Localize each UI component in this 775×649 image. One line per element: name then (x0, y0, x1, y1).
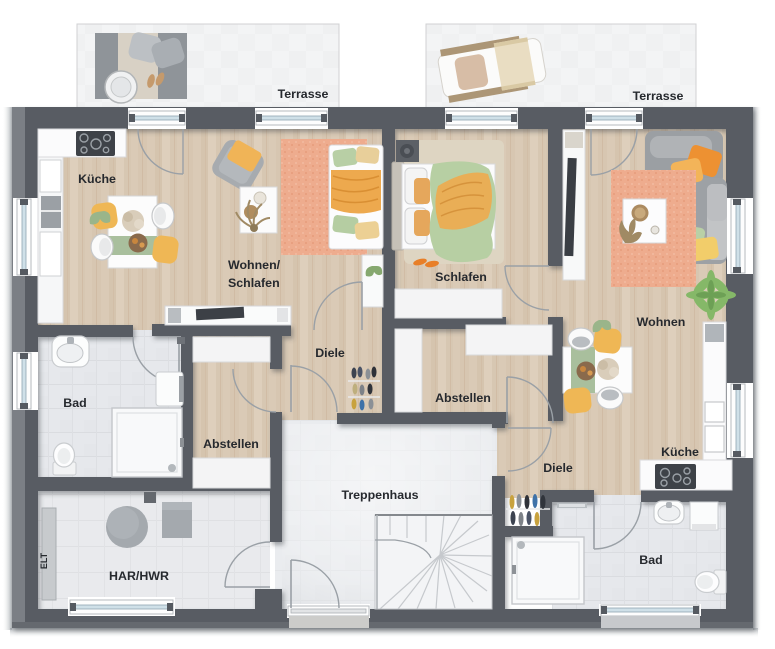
svg-text:Terrasse: Terrasse (278, 87, 329, 101)
svg-text:Schlafen: Schlafen (228, 276, 280, 290)
svg-text:HAR/HWR: HAR/HWR (109, 569, 169, 583)
svg-text:Schlafen: Schlafen (435, 270, 487, 284)
svg-text:Küche: Küche (78, 172, 116, 186)
svg-text:Terrasse: Terrasse (633, 89, 684, 103)
svg-text:Abstellen: Abstellen (435, 391, 491, 405)
svg-text:Abstellen: Abstellen (203, 437, 259, 451)
svg-text:Diele: Diele (315, 346, 345, 360)
svg-text:Treppenhaus: Treppenhaus (341, 488, 418, 502)
svg-text:Wohnen: Wohnen (637, 315, 686, 329)
svg-text:Diele: Diele (543, 461, 573, 475)
svg-text:Bad: Bad (639, 553, 662, 567)
svg-text:ELT: ELT (39, 552, 49, 569)
svg-text:Küche: Küche (661, 445, 699, 459)
svg-text:Wohnen/: Wohnen/ (228, 258, 281, 272)
svg-text:Bad: Bad (63, 396, 86, 410)
